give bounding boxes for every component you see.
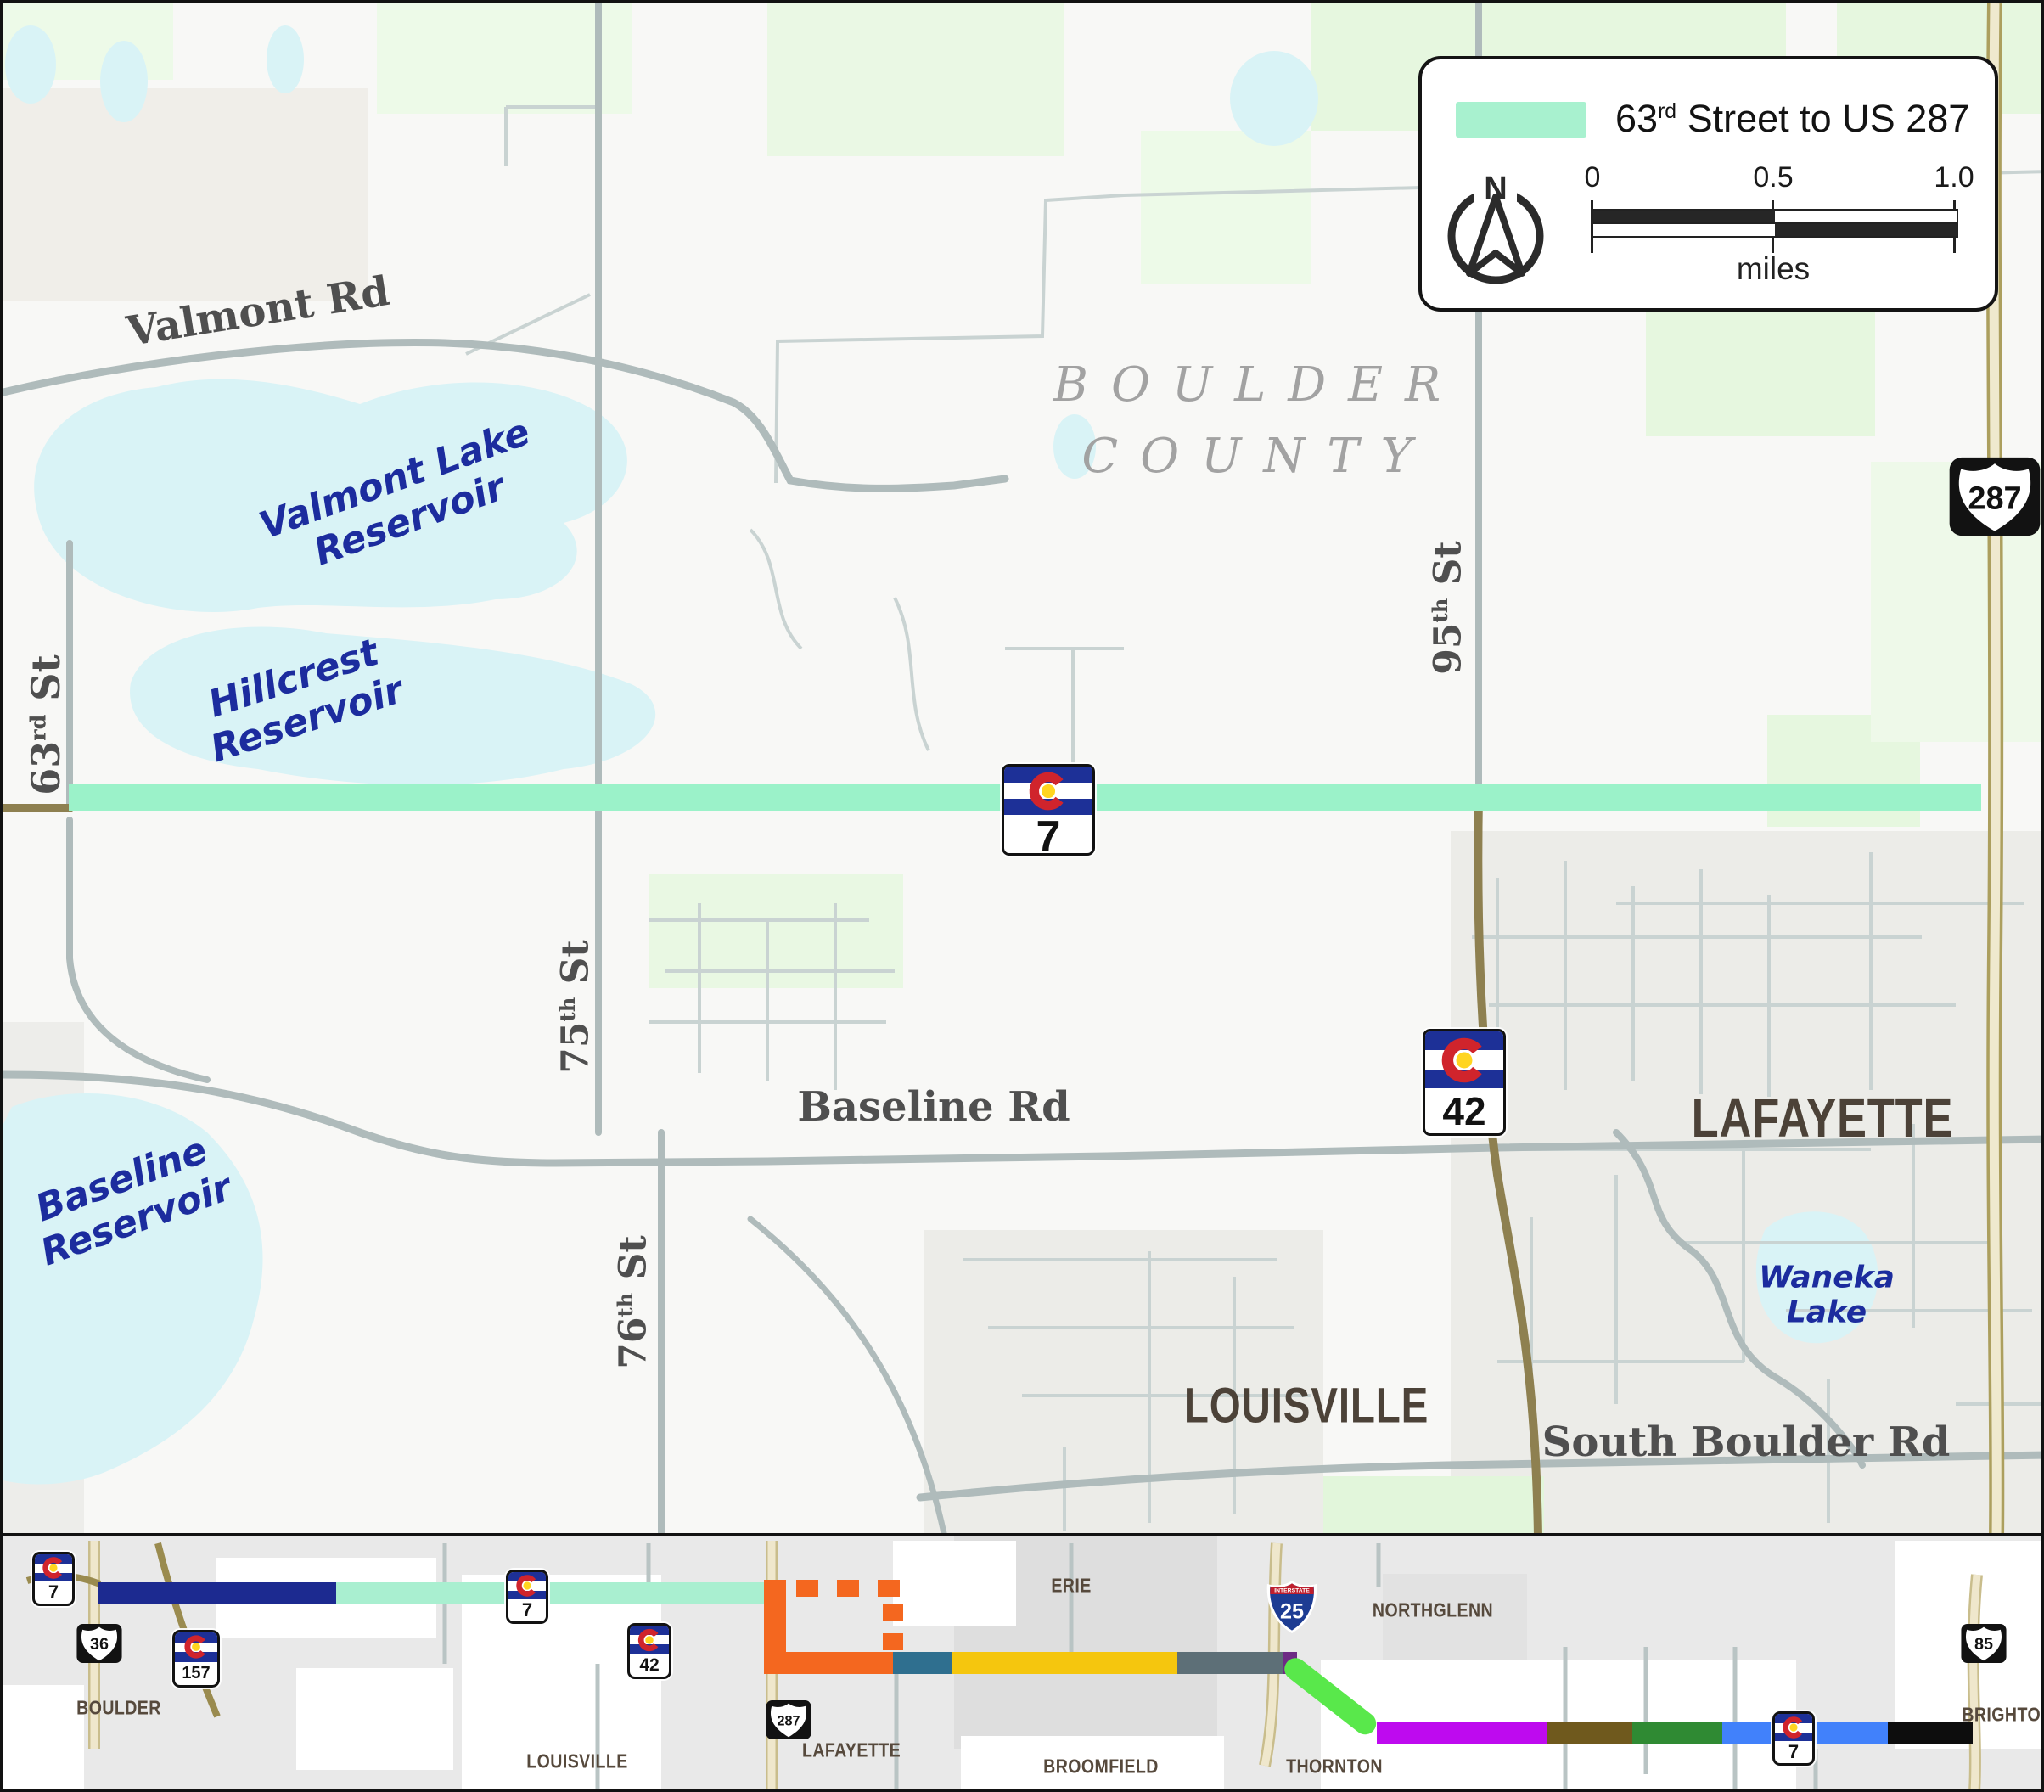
svg-text:85: 85: [1974, 1635, 1993, 1654]
co7-shield-strip-east: 7: [1772, 1711, 1815, 1766]
segment-mint: [336, 1582, 766, 1604]
segment-navy: [98, 1582, 336, 1604]
us287-shield-main: 287: [1947, 457, 2042, 536]
north-arrow-icon: N: [1440, 160, 1551, 292]
segment-black: [1888, 1722, 1973, 1744]
colorado-c-icon: [1438, 1034, 1491, 1087]
strip-city-louisville: LOUISVILLE: [526, 1750, 627, 1773]
strip-city-lafayette: LAFAYETTE: [802, 1739, 901, 1762]
scale-0: 0: [1585, 161, 1601, 194]
segment-forest-green: [1632, 1722, 1722, 1744]
svg-text:N: N: [1484, 171, 1507, 206]
map-screenshot: BOULDER COUNTY Valmont Rd Baseline Rd So…: [0, 0, 2044, 1792]
segment-brown: [1547, 1722, 1632, 1744]
svg-text:287: 287: [777, 1713, 800, 1728]
co157-shield: 157: [172, 1630, 220, 1688]
i25-shield: INTERSTATE 25: [1266, 1579, 1318, 1635]
us36-shield: 36: [76, 1623, 122, 1664]
street-label-63rd: 63rd St: [23, 654, 69, 795]
svg-text:INTERSTATE: INTERSTATE: [1274, 1588, 1310, 1594]
legend-corridor-swatch: [1456, 102, 1586, 138]
segment-orange-dash: [883, 1633, 903, 1650]
segment-orange-dash: [796, 1580, 818, 1597]
us287-shield-strip: 287: [766, 1699, 811, 1740]
co42-shield-strip: 42: [627, 1623, 671, 1679]
street-label-75th: 75th St: [554, 940, 598, 1073]
svg-text:36: 36: [90, 1635, 109, 1654]
strip-city-northglenn: NORTHGLENN: [1373, 1599, 1493, 1622]
south-boulder-rd-label: South Boulder Rd: [1542, 1418, 1951, 1466]
strip-divider: [3, 1533, 2044, 1536]
city-label-lafayette: LAFAYETTE: [1692, 1087, 1954, 1149]
scale-0-5: 0.5: [1753, 161, 1793, 194]
scale-unit-label: miles: [1591, 251, 1956, 287]
segment-slate: [1177, 1652, 1283, 1674]
segment-orange-dash: [883, 1604, 903, 1621]
scale-bars: [1592, 209, 1958, 238]
co42-shield-main: 42: [1423, 1029, 1506, 1136]
strip-city-brighton: BRIGHTON: [1962, 1704, 2044, 1727]
street-label-95th: 95th St: [1427, 541, 1470, 674]
strip-city-boulder: BOULDER: [76, 1697, 161, 1720]
colorado-flag-icon: [1004, 767, 1092, 815]
strip-city-broomfield: BROOMFIELD: [1043, 1755, 1159, 1778]
street-label-76th: 76th St: [612, 1235, 655, 1368]
co7-shield-strip-mid: 7: [506, 1570, 548, 1624]
scale-bar: 0 0.5 1.0 miles: [1591, 161, 1959, 297]
legend-panel: 63rd Street to US 287 N 0 0.5 1.0 miles: [1418, 56, 1998, 312]
colorado-c-icon: [1026, 768, 1071, 813]
scale-1-0: 1.0: [1934, 161, 1974, 194]
waneka-lake-label: WanekaLake: [1759, 1261, 1895, 1331]
us85-shield: 85: [1961, 1623, 2007, 1664]
county-label: BOULDER COUNTY: [1053, 350, 1463, 492]
colorado-flag-icon: [1425, 1031, 1503, 1088]
co7-shield-main: 7: [1002, 764, 1095, 856]
strip-city-erie: ERIE: [1051, 1575, 1091, 1598]
segment-magenta: [1377, 1722, 1547, 1744]
co7-number: 7: [1004, 815, 1092, 856]
segment-teal: [893, 1652, 952, 1674]
segment-orange-dash: [878, 1580, 900, 1597]
segment-orange-bottom: [764, 1652, 893, 1674]
segment-orange-dash: [837, 1580, 859, 1597]
city-label-louisville: LOUISVILLE: [1184, 1378, 1429, 1435]
co42-number: 42: [1425, 1088, 1503, 1133]
segment-yellow: [952, 1652, 1177, 1674]
baseline-rd-label: Baseline Rd: [797, 1083, 1070, 1131]
svg-text:25: 25: [1280, 1600, 1304, 1624]
strip-city-thornton: THORNTON: [1286, 1755, 1383, 1778]
co7-shield-strip-west: 7: [32, 1552, 75, 1606]
svg-text:287: 287: [1968, 480, 2021, 516]
legend-title: 63rd Street to US 287: [1615, 97, 1969, 141]
